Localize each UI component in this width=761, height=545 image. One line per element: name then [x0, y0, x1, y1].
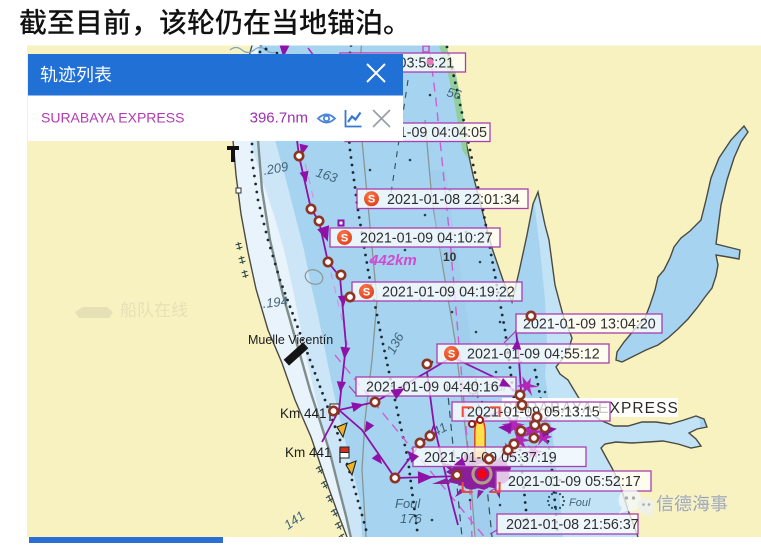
- svg-text:03:58:21: 03:58:21: [399, 56, 455, 72]
- svg-text:2021-01-09 05:52:17: 2021-01-09 05:52:17: [508, 474, 641, 490]
- svg-text:S: S: [448, 348, 455, 360]
- svg-text:2021-01-09 04:19:22: 2021-01-09 04:19:22: [382, 285, 515, 301]
- svg-text:SURABAYA EXPRESS: SURABAYA EXPRESS: [41, 110, 184, 126]
- svg-text:S: S: [363, 286, 370, 298]
- svg-text:2021-01-09 04:55:12: 2021-01-09 04:55:12: [467, 347, 600, 363]
- svg-text:176: 176: [400, 511, 422, 526]
- svg-text:.194: .194: [262, 293, 289, 311]
- svg-text:2021-01-09 13:04:20: 2021-01-09 13:04:20: [523, 317, 656, 333]
- svg-text:Km 441: Km 441: [280, 406, 327, 421]
- svg-text:Foul: Foul: [395, 496, 421, 511]
- svg-text:396.7nm: 396.7nm: [250, 110, 308, 127]
- svg-text:2021-01-08 21:56:37: 2021-01-08 21:56:37: [506, 517, 639, 533]
- svg-text:2021-01-08 22:01:34: 2021-01-08 22:01:34: [387, 192, 520, 208]
- svg-text:442km: 442km: [369, 252, 417, 269]
- svg-text:S: S: [368, 194, 375, 206]
- svg-text:2021-01-09 04:10:27: 2021-01-09 04:10:27: [360, 231, 493, 247]
- svg-text:2021-01-09 04:40:16: 2021-01-09 04:40:16: [366, 380, 499, 396]
- svg-text:Foul: Foul: [569, 497, 591, 509]
- svg-text:Km 441: Km 441: [285, 445, 332, 460]
- svg-text:Muelle Vicentín: Muelle Vicentín: [248, 333, 333, 347]
- svg-text:10: 10: [443, 250, 457, 264]
- svg-text:S: S: [341, 232, 348, 244]
